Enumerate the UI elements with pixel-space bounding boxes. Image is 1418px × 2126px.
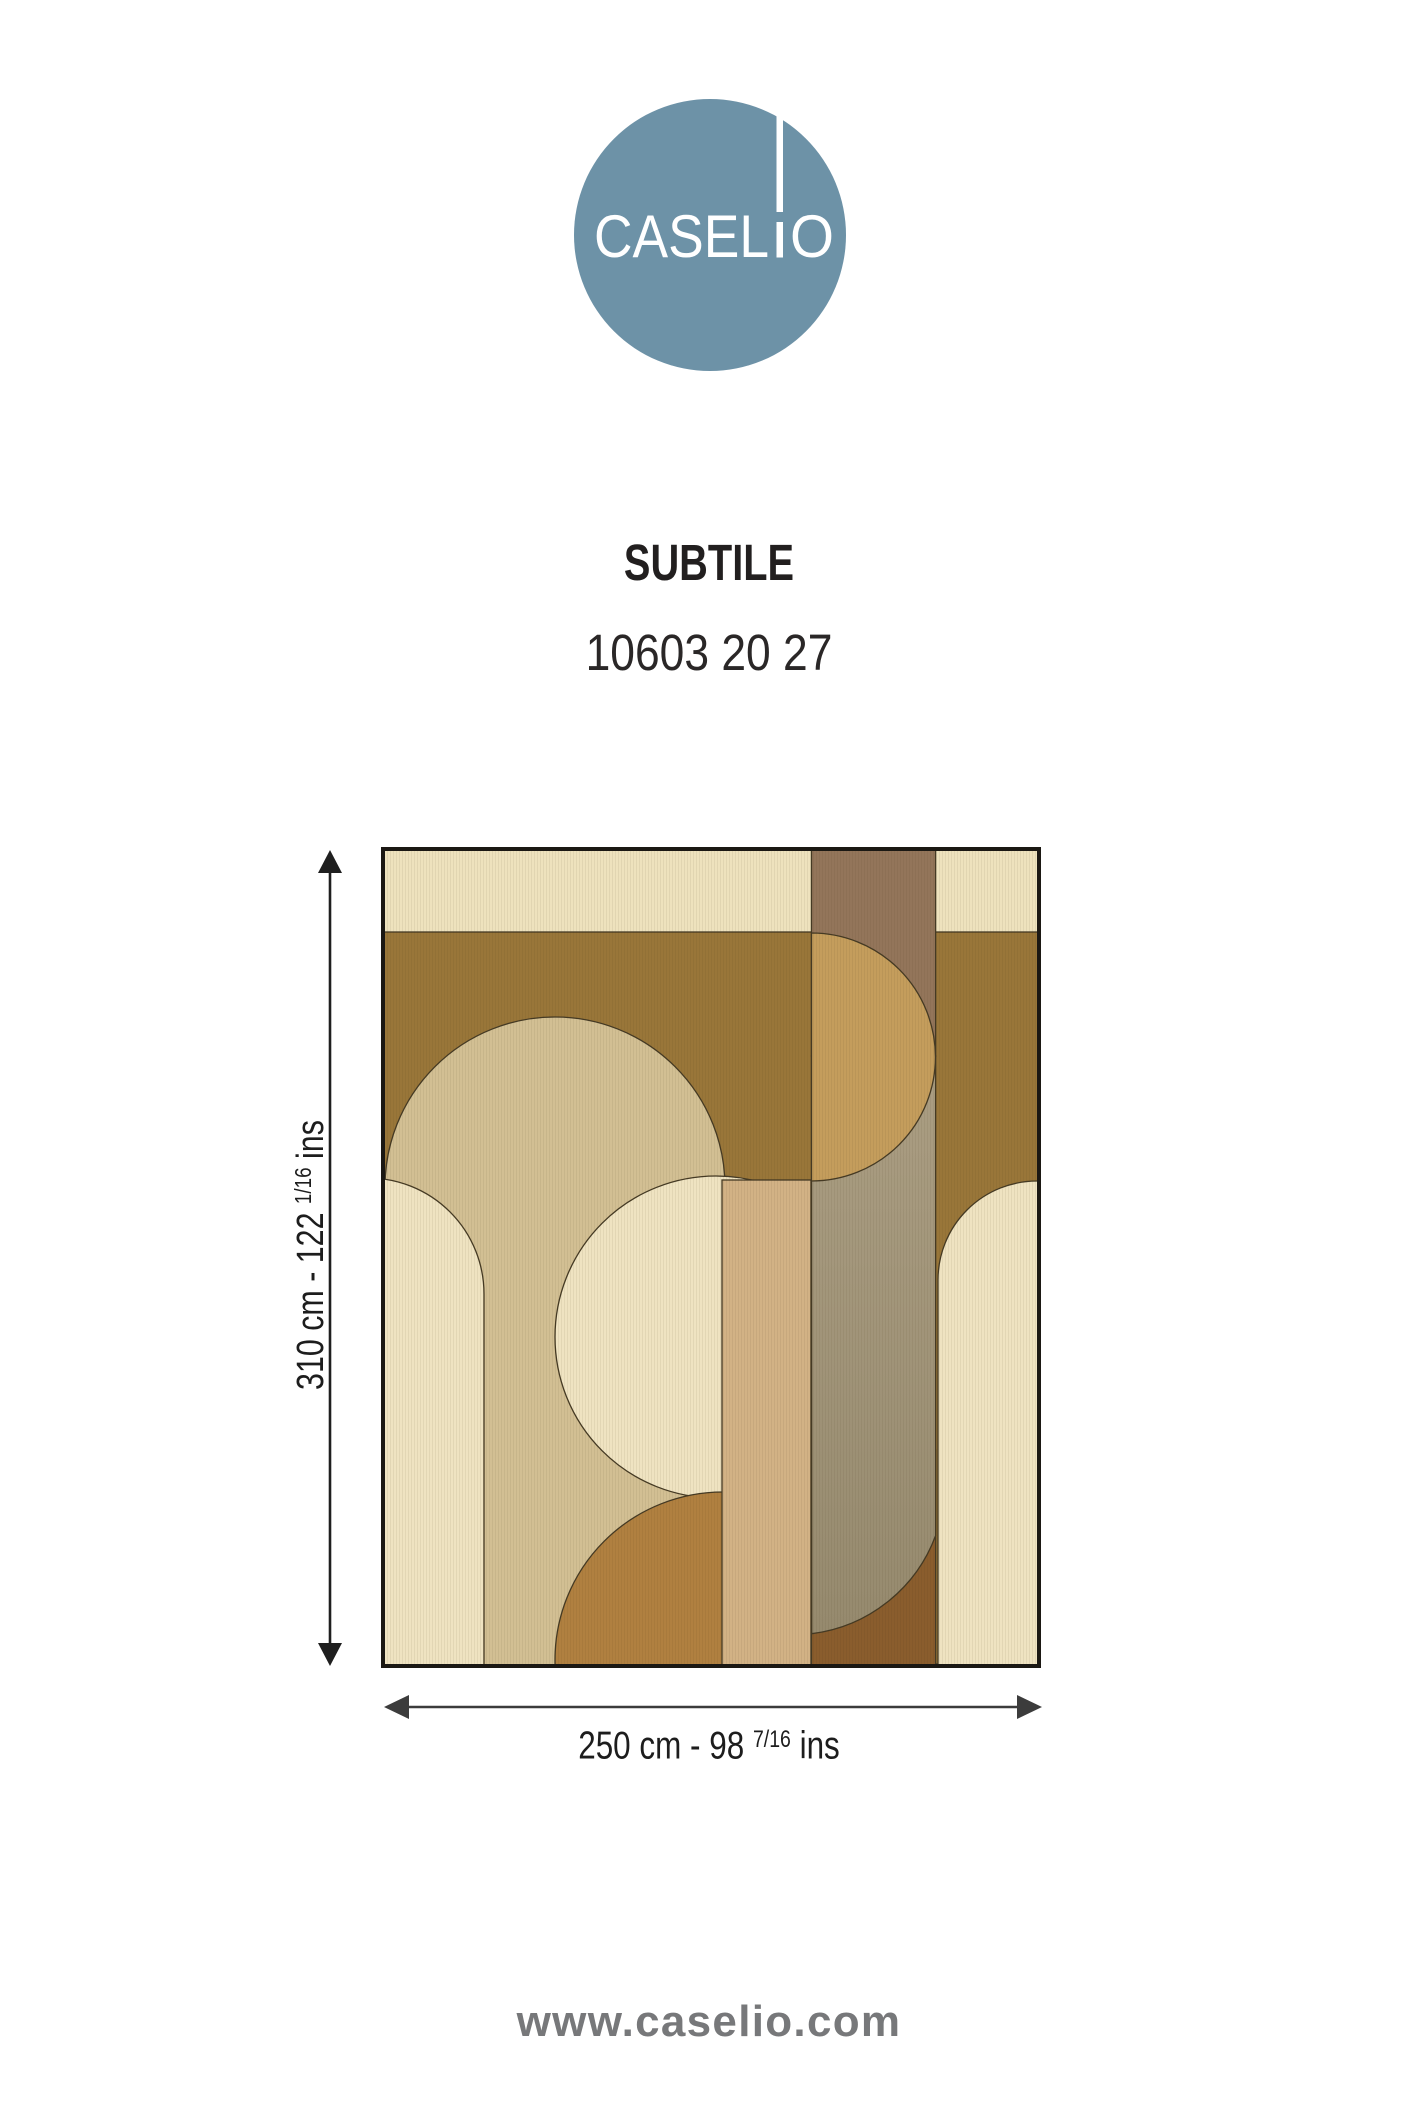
svg-text:O: O xyxy=(790,203,834,270)
svg-text:CASEL: CASEL xyxy=(594,203,769,270)
